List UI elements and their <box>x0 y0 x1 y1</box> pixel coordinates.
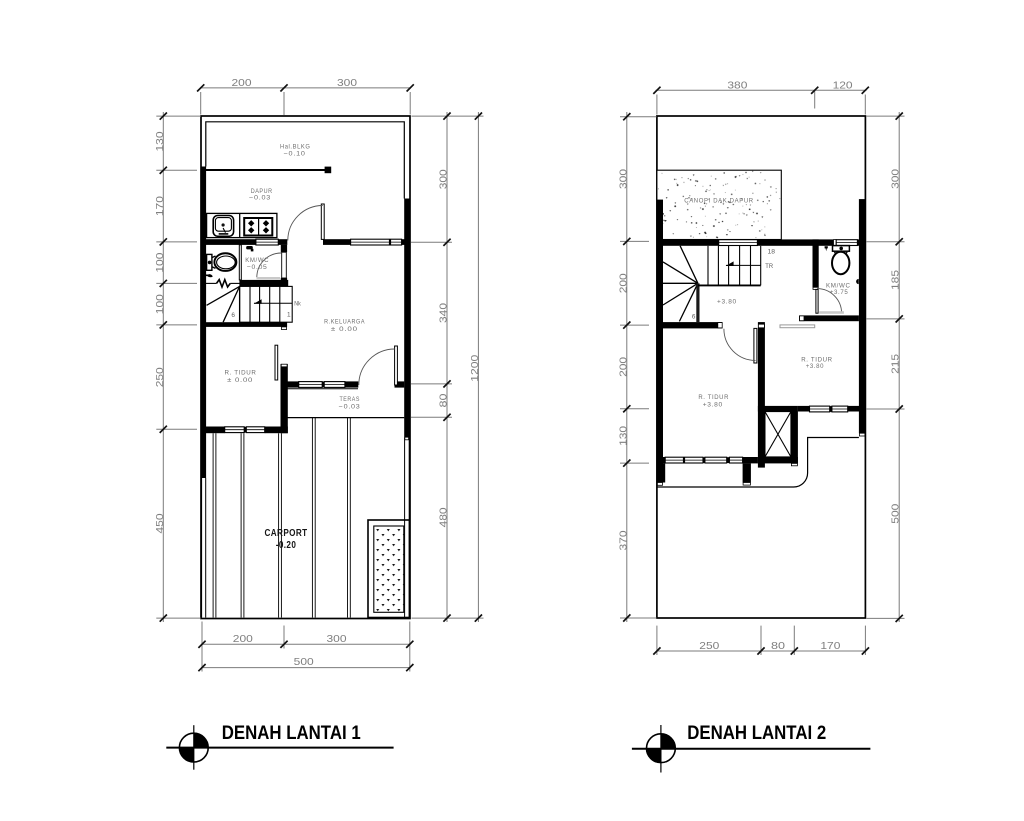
svg-text:CANOPI DAK DAPUR: CANOPI DAK DAPUR <box>684 197 754 204</box>
svg-text:1: 1 <box>287 312 291 319</box>
svg-text:380: 380 <box>727 80 747 91</box>
svg-text:200: 200 <box>618 357 629 377</box>
svg-text:6: 6 <box>692 314 696 321</box>
svg-text:DENAH LANTAI 2: DENAH LANTAI 2 <box>687 723 826 744</box>
svg-text:± 0.00: ± 0.00 <box>227 377 253 384</box>
svg-text:480: 480 <box>439 507 450 527</box>
svg-text:300: 300 <box>891 169 902 189</box>
svg-text:300: 300 <box>439 169 450 189</box>
svg-text:500: 500 <box>294 657 314 668</box>
svg-text:200: 200 <box>232 78 252 89</box>
svg-text:± 0.00: ± 0.00 <box>331 326 358 333</box>
svg-text:−0.05: −0.05 <box>247 264 268 271</box>
svg-text:130: 130 <box>155 131 166 151</box>
svg-text:R. TIDUR: R. TIDUR <box>698 394 729 401</box>
svg-text:200: 200 <box>618 273 629 293</box>
svg-text:−0.03: −0.03 <box>249 195 271 202</box>
svg-text:−0.10: −0.10 <box>284 151 306 158</box>
svg-text:DENAH LANTAI 1: DENAH LANTAI 1 <box>222 723 361 744</box>
svg-text:1200: 1200 <box>470 354 481 381</box>
svg-text:6: 6 <box>231 312 235 319</box>
svg-text:185: 185 <box>891 270 902 290</box>
svg-text:18: 18 <box>768 249 776 256</box>
svg-text:TR: TR <box>765 263 773 270</box>
svg-text:Nk: Nk <box>294 300 301 307</box>
svg-text:Hal.BLKG: Hal.BLKG <box>280 144 311 151</box>
svg-text:130: 130 <box>618 426 629 446</box>
svg-text:300: 300 <box>337 78 357 89</box>
svg-text:100: 100 <box>155 294 166 314</box>
svg-text:215: 215 <box>891 354 902 374</box>
svg-text:100: 100 <box>155 252 166 272</box>
svg-text:CARPORT: CARPORT <box>265 527 308 539</box>
svg-text:+3.80: +3.80 <box>703 401 723 408</box>
svg-text:340: 340 <box>439 303 450 323</box>
svg-text:300: 300 <box>618 169 629 189</box>
svg-text:250: 250 <box>155 367 166 387</box>
svg-text:R.KELUARGA: R.KELUARGA <box>324 319 365 326</box>
svg-text:+3.75: +3.75 <box>830 289 849 296</box>
svg-text:200: 200 <box>233 634 253 645</box>
svg-text:170: 170 <box>820 641 840 652</box>
svg-text:450: 450 <box>155 513 166 533</box>
svg-text:120: 120 <box>833 80 853 91</box>
svg-text:500: 500 <box>891 503 902 523</box>
svg-text:R. TIDUR: R. TIDUR <box>225 369 257 376</box>
svg-text:250: 250 <box>699 641 719 652</box>
svg-text:−0.03: −0.03 <box>339 403 361 410</box>
svg-text:80: 80 <box>771 641 785 652</box>
svg-text:300: 300 <box>327 634 347 645</box>
svg-text:-0.20: -0.20 <box>276 539 297 551</box>
svg-text:80: 80 <box>439 393 450 407</box>
svg-text:370: 370 <box>618 530 629 550</box>
svg-text:TERAS: TERAS <box>339 396 360 403</box>
svg-text:+3.80: +3.80 <box>717 299 737 306</box>
svg-text:170: 170 <box>155 196 166 216</box>
svg-text:+3.80: +3.80 <box>806 363 824 370</box>
